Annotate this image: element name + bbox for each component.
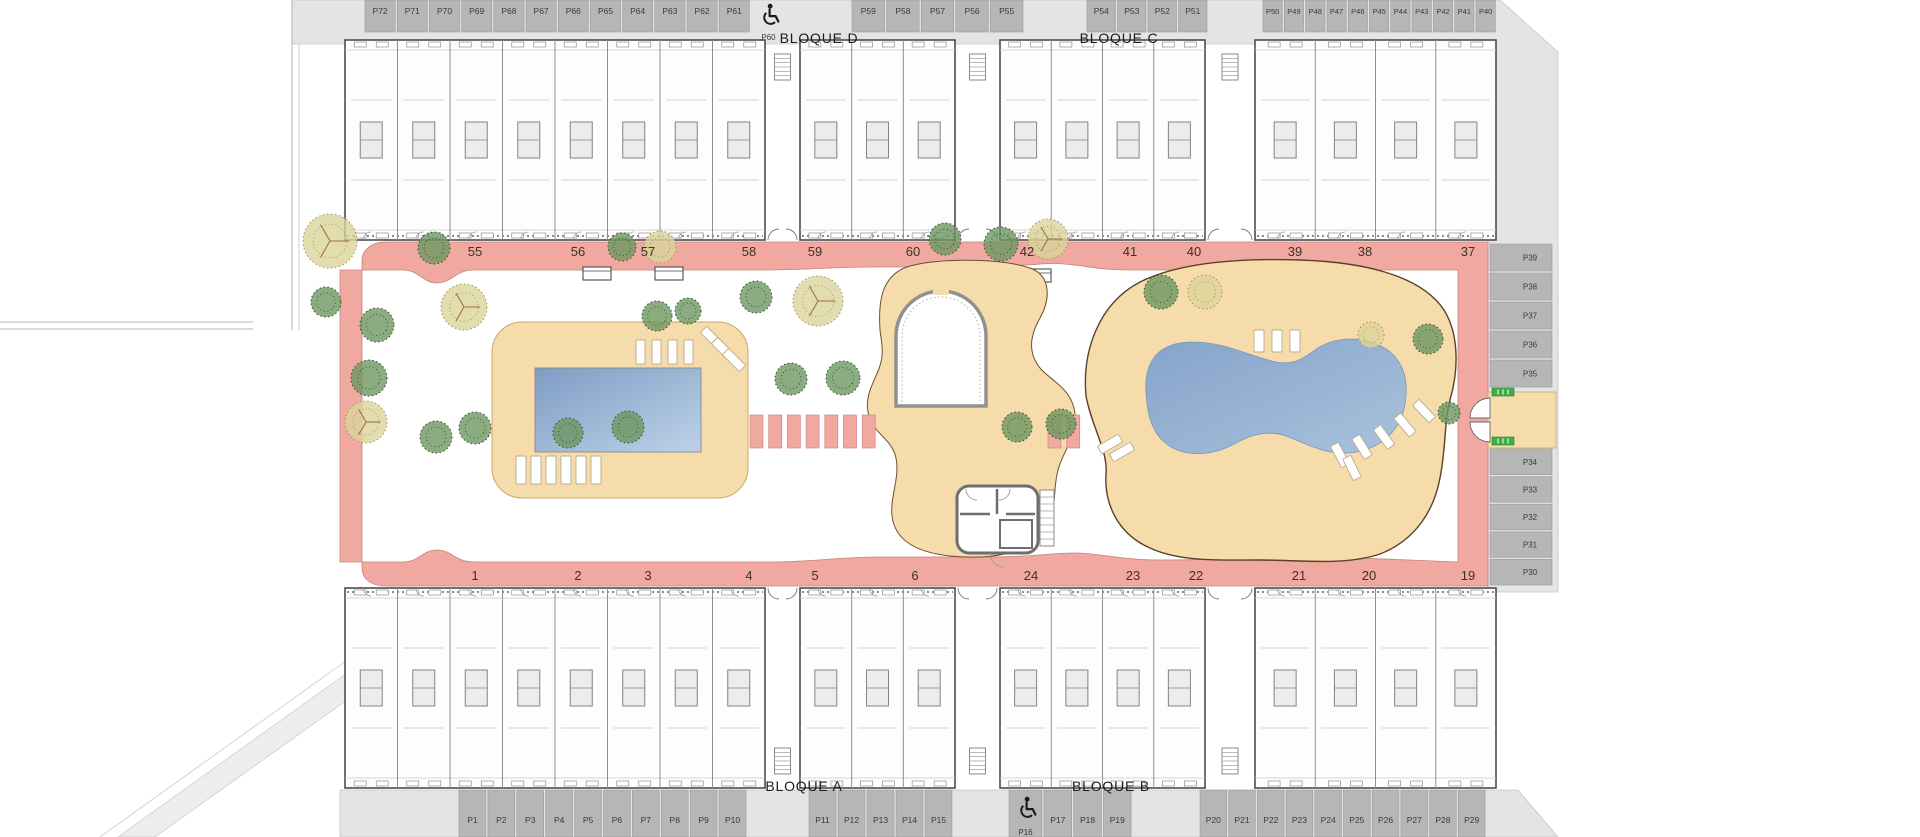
parking-stall-p51[interactable]: P51	[1179, 0, 1208, 32]
stall-label: P9	[698, 815, 709, 825]
parking-stall-p70[interactable]: P70	[429, 0, 459, 32]
unit-number-37[interactable]: 37	[1461, 244, 1475, 259]
parking-stall-p52[interactable]: P52	[1148, 0, 1177, 32]
stall-label: P34	[1523, 458, 1538, 467]
stall-label: P56	[965, 6, 980, 16]
stall-label: P19	[1110, 815, 1125, 825]
stall-label: P22	[1263, 815, 1278, 825]
stall-label: P15	[931, 815, 946, 825]
apartment-building	[345, 588, 765, 788]
olive-tree-icon	[303, 214, 357, 268]
stall-label: P21	[1234, 815, 1249, 825]
green-tree-icon	[929, 223, 961, 255]
parking-stall-p38[interactable]: P38	[1490, 273, 1552, 300]
parking-stall-p48[interactable]: P48	[1306, 0, 1325, 32]
apartment-building	[1000, 588, 1205, 788]
parking-stall-p20[interactable]: P20	[1200, 790, 1227, 837]
stall-label: P39	[1523, 254, 1538, 263]
parking-stall-p14[interactable]: P14	[896, 790, 923, 837]
parking-stall-p19[interactable]: P19	[1103, 790, 1131, 837]
parking-stall-p29[interactable]: P29	[1458, 790, 1485, 837]
apartment-building	[800, 40, 955, 240]
unit-number-58[interactable]: 58	[742, 244, 756, 259]
parking-stall-p41[interactable]: P41	[1455, 0, 1474, 32]
block-label-bloque-a: BLOQUE A	[765, 778, 842, 794]
stall-label: P5	[583, 815, 594, 825]
stall-label: P33	[1523, 485, 1538, 494]
stall-label: P49	[1287, 7, 1300, 16]
central-amenity-area	[867, 260, 1075, 567]
parking-stall-p13[interactable]: P13	[867, 790, 894, 837]
parking-stall-p17[interactable]: P17	[1044, 790, 1072, 837]
stall-label: P20	[1206, 815, 1221, 825]
olive-tree-icon	[441, 284, 487, 330]
unit-number-6[interactable]: 6	[911, 568, 918, 583]
left-pool-deck	[492, 322, 748, 498]
stall-label: P11	[815, 815, 830, 825]
apartment-building	[1255, 40, 1496, 240]
parking-stall-p30[interactable]: P30	[1490, 559, 1552, 585]
parking-stall-p71[interactable]: P71	[397, 0, 427, 32]
parking-stall-p15[interactable]: P15	[925, 790, 952, 837]
parking-stall-p39[interactable]: P39	[1490, 244, 1552, 271]
unit-number-22[interactable]: 22	[1189, 568, 1203, 583]
parking-stall-p46[interactable]: P46	[1348, 0, 1367, 32]
stall-label: P4	[554, 815, 565, 825]
stall-label: P41	[1458, 7, 1471, 16]
parking-stall-p25[interactable]: P25	[1344, 790, 1371, 837]
parking-stall-p37[interactable]: P37	[1490, 302, 1552, 329]
stall-label: P44	[1394, 7, 1407, 16]
stall-label: P13	[873, 815, 888, 825]
stall-label: P12	[844, 815, 859, 825]
stall-label: P60	[761, 33, 776, 42]
parking-stall-p26[interactable]: P26	[1372, 790, 1399, 837]
stall-label: P8	[670, 815, 681, 825]
parking-stall-p72[interactable]: P72	[365, 0, 395, 32]
stall-label: P24	[1321, 815, 1336, 825]
parking-stall-p7[interactable]: P7	[632, 790, 659, 837]
bench	[655, 267, 683, 280]
block-label-bloque-b: BLOQUE B	[1072, 778, 1150, 794]
green-tree-icon	[553, 418, 583, 448]
unit-number-56[interactable]: 56	[571, 244, 585, 259]
stall-label: P58	[895, 6, 910, 16]
entrance-corridor	[1208, 588, 1252, 774]
stall-label: P26	[1378, 815, 1393, 825]
stall-label: P57	[930, 6, 945, 16]
block-label-bloque-c: BLOQUE C	[1080, 30, 1159, 46]
stall-label: P29	[1464, 815, 1479, 825]
green-tree-icon	[1438, 402, 1460, 424]
parking-stall-p44[interactable]: P44	[1391, 0, 1410, 32]
entrance-corridor	[1208, 54, 1252, 240]
parking-stall-p68[interactable]: P68	[494, 0, 524, 32]
stall-label: P32	[1523, 513, 1538, 522]
green-tree-icon	[826, 361, 860, 395]
parking-stall-p66[interactable]: P66	[558, 0, 588, 32]
apartment-building	[800, 588, 955, 788]
parking-stall-p50[interactable]: P50	[1263, 0, 1282, 32]
stall-label: P43	[1415, 7, 1428, 16]
parking-stall-p65[interactable]: P65	[590, 0, 620, 32]
green-tree-icon	[459, 412, 491, 444]
stall-label: P40	[1479, 7, 1492, 16]
stall-label: P14	[902, 815, 917, 825]
parking-stall-p42[interactable]: P42	[1433, 0, 1452, 32]
unit-number-24[interactable]: 24	[1024, 568, 1038, 583]
stall-label: P70	[437, 6, 452, 16]
stall-label: P50	[1266, 7, 1279, 16]
block-label-bloque-d: BLOQUE D	[780, 30, 859, 46]
green-tree-icon	[418, 232, 450, 264]
parking-stall-p54[interactable]: P54	[1087, 0, 1116, 32]
entrance-corridor	[768, 588, 797, 774]
green-tree-icon	[1002, 412, 1032, 442]
green-tree-icon	[1046, 409, 1076, 439]
unit-number-2[interactable]: 2	[574, 568, 581, 583]
stall-label: P6	[612, 815, 623, 825]
green-tree-icon	[1144, 275, 1178, 309]
parking-stall-p8[interactable]: P8	[661, 790, 688, 837]
unit-number-59[interactable]: 59	[808, 244, 822, 259]
unit-number-55[interactable]: 55	[468, 244, 482, 259]
parking-stall-p34[interactable]: P34	[1490, 449, 1552, 475]
parking-stall-p47[interactable]: P47	[1327, 0, 1346, 32]
parking-stall-p62[interactable]: P62	[687, 0, 717, 32]
parking-stall-p63[interactable]: P63	[655, 0, 685, 32]
apartment-building	[1000, 40, 1205, 240]
stall-label: P45	[1372, 7, 1385, 16]
unit-number-1[interactable]: 1	[471, 568, 478, 583]
stall-label: P3	[525, 815, 536, 825]
stall-label: P2	[496, 815, 507, 825]
parking-stall-p28[interactable]: P28	[1430, 790, 1457, 837]
parking-stall-p1[interactable]: P1	[459, 790, 486, 837]
stall-label: P69	[469, 6, 484, 16]
parking-stall-p12[interactable]: P12	[838, 790, 865, 837]
stall-label: P51	[1185, 6, 1200, 16]
entrance-corridor	[958, 54, 997, 240]
green-tree-icon	[360, 308, 394, 342]
stall-label: P30	[1523, 568, 1538, 577]
stall-label: P47	[1330, 7, 1343, 16]
green-tree-icon	[608, 233, 636, 261]
unit-number-41[interactable]: 41	[1123, 244, 1137, 259]
parking-stall-p36[interactable]: P36	[1490, 331, 1552, 358]
olive-tree-icon	[1188, 275, 1222, 309]
unit-number-57[interactable]: 57	[641, 244, 655, 259]
parking-stall-p59[interactable]: P59	[852, 0, 885, 32]
green-tree-icon	[984, 227, 1018, 261]
site-plan: P72P71P70P69P68P67P66P65P64P63P62P61P60P…	[0, 0, 1920, 837]
parking-stall-p16[interactable]: P16	[1009, 790, 1042, 837]
parking-stall-p4[interactable]: P4	[546, 790, 573, 837]
stall-label: P52	[1155, 6, 1170, 16]
parking-stall-p57[interactable]: P57	[921, 0, 954, 32]
stall-label: P16	[1018, 828, 1033, 837]
stall-label: P36	[1523, 341, 1538, 350]
green-landscape-marker	[1492, 437, 1514, 445]
bench	[583, 267, 611, 280]
stall-label: P48	[1309, 7, 1322, 16]
parking-stall-p2[interactable]: P2	[488, 790, 515, 837]
parking-stall-p33[interactable]: P33	[1490, 477, 1552, 503]
stall-label: P68	[501, 6, 516, 16]
parking-stall-p9[interactable]: P9	[690, 790, 717, 837]
unit-number-40[interactable]: 40	[1187, 244, 1201, 259]
stall-label: P38	[1523, 283, 1538, 292]
stall-label: P18	[1080, 815, 1095, 825]
stall-label: P23	[1292, 815, 1307, 825]
parking-stall-p61[interactable]: P61	[719, 0, 749, 32]
stall-label: P64	[630, 6, 645, 16]
parking-stall-p6[interactable]: P6	[604, 790, 631, 837]
stall-label: P37	[1523, 312, 1538, 321]
unit-number-42[interactable]: 42	[1020, 244, 1034, 259]
stall-label: P62	[695, 6, 710, 16]
stall-label: P65	[598, 6, 613, 16]
green-tree-icon	[311, 287, 341, 317]
unit-number-20[interactable]: 20	[1362, 568, 1376, 583]
parking-stall-p27[interactable]: P27	[1401, 790, 1428, 837]
apartment-building	[345, 40, 765, 240]
stall-label: P31	[1523, 541, 1538, 550]
parking-stall-p43[interactable]: P43	[1412, 0, 1431, 32]
stall-label: P10	[725, 815, 740, 825]
parking-stall-p21[interactable]: P21	[1229, 790, 1256, 837]
stall-label: P25	[1349, 815, 1364, 825]
parking-stall-p11[interactable]: P11	[809, 790, 836, 837]
green-tree-icon	[1413, 324, 1443, 354]
apartment-building	[1255, 588, 1496, 788]
parking-stall-p24[interactable]: P24	[1315, 790, 1342, 837]
parking-stall-p58[interactable]: P58	[887, 0, 920, 32]
unit-number-38[interactable]: 38	[1358, 244, 1372, 259]
olive-tree-icon	[793, 276, 843, 326]
unit-number-3[interactable]: 3	[644, 568, 651, 583]
olive-tree-icon	[1358, 322, 1384, 348]
unit-number-23[interactable]: 23	[1126, 568, 1140, 583]
stall-label: P54	[1094, 6, 1109, 16]
parking-stall-p22[interactable]: P22	[1257, 790, 1284, 837]
stall-label: P71	[405, 6, 420, 16]
parking-stall-p56[interactable]: P56	[956, 0, 989, 32]
green-tree-icon	[420, 421, 452, 453]
unit-number-39[interactable]: 39	[1288, 244, 1302, 259]
green-tree-icon	[351, 360, 387, 396]
parking-stall-p53[interactable]: P53	[1118, 0, 1147, 32]
parking-stall-p31[interactable]: P31	[1490, 532, 1552, 558]
parking-stall-p40[interactable]: P40	[1476, 0, 1495, 32]
parking-stall-p55[interactable]: P55	[990, 0, 1023, 32]
unit-number-4[interactable]: 4	[745, 568, 752, 583]
stall-label: P63	[662, 6, 677, 16]
stall-label: P28	[1435, 815, 1450, 825]
stall-label: P67	[534, 6, 549, 16]
parking-stall-p69[interactable]: P69	[462, 0, 492, 32]
parking-stall-p64[interactable]: P64	[623, 0, 653, 32]
stall-label: P59	[861, 6, 876, 16]
unit-number-5[interactable]: 5	[811, 568, 818, 583]
entrance-corridor	[768, 54, 797, 240]
green-tree-icon	[775, 363, 807, 395]
green-tree-icon	[642, 301, 672, 331]
stall-label: P42	[1436, 7, 1449, 16]
entrance-corridor	[958, 588, 997, 774]
parking-stall-p32[interactable]: P32	[1490, 504, 1552, 530]
green-tree-icon	[740, 281, 772, 313]
stall-label: P66	[566, 6, 581, 16]
stall-label: P55	[999, 6, 1014, 16]
parking-stall-p49[interactable]: P49	[1284, 0, 1303, 32]
green-landscape-marker	[1492, 388, 1514, 396]
green-tree-icon	[675, 298, 701, 324]
stall-label: P35	[1523, 370, 1538, 379]
parking-stall-p5[interactable]: P5	[575, 790, 602, 837]
stall-label: P1	[467, 815, 478, 825]
olive-tree-icon	[345, 401, 387, 443]
green-tree-icon	[612, 411, 644, 443]
unit-number-60[interactable]: 60	[906, 244, 920, 259]
site-plan-canvas: P72P71P70P69P68P67P66P65P64P63P62P61P60P…	[0, 0, 1920, 837]
stall-label: P72	[373, 6, 388, 16]
kidney-pool-deck	[1085, 260, 1456, 562]
parking-stall-p67[interactable]: P67	[526, 0, 556, 32]
stall-label: P27	[1407, 815, 1422, 825]
stall-label: P17	[1050, 815, 1065, 825]
parking-stall-p3[interactable]: P3	[517, 790, 544, 837]
stall-label: P53	[1124, 6, 1139, 16]
unit-number-19[interactable]: 19	[1461, 568, 1475, 583]
stall-label: P61	[727, 6, 742, 16]
unit-number-21[interactable]: 21	[1292, 568, 1306, 583]
parking-stall-p45[interactable]: P45	[1370, 0, 1389, 32]
parking-stall-p10[interactable]: P10	[719, 790, 746, 837]
arch-enclosure	[896, 291, 986, 406]
parking-stall-p23[interactable]: P23	[1286, 790, 1313, 837]
parking-stall-p35[interactable]: P35	[1490, 360, 1552, 387]
stall-label: P7	[641, 815, 652, 825]
parking-stall-p18[interactable]: P18	[1074, 790, 1102, 837]
stall-label: P46	[1351, 7, 1364, 16]
